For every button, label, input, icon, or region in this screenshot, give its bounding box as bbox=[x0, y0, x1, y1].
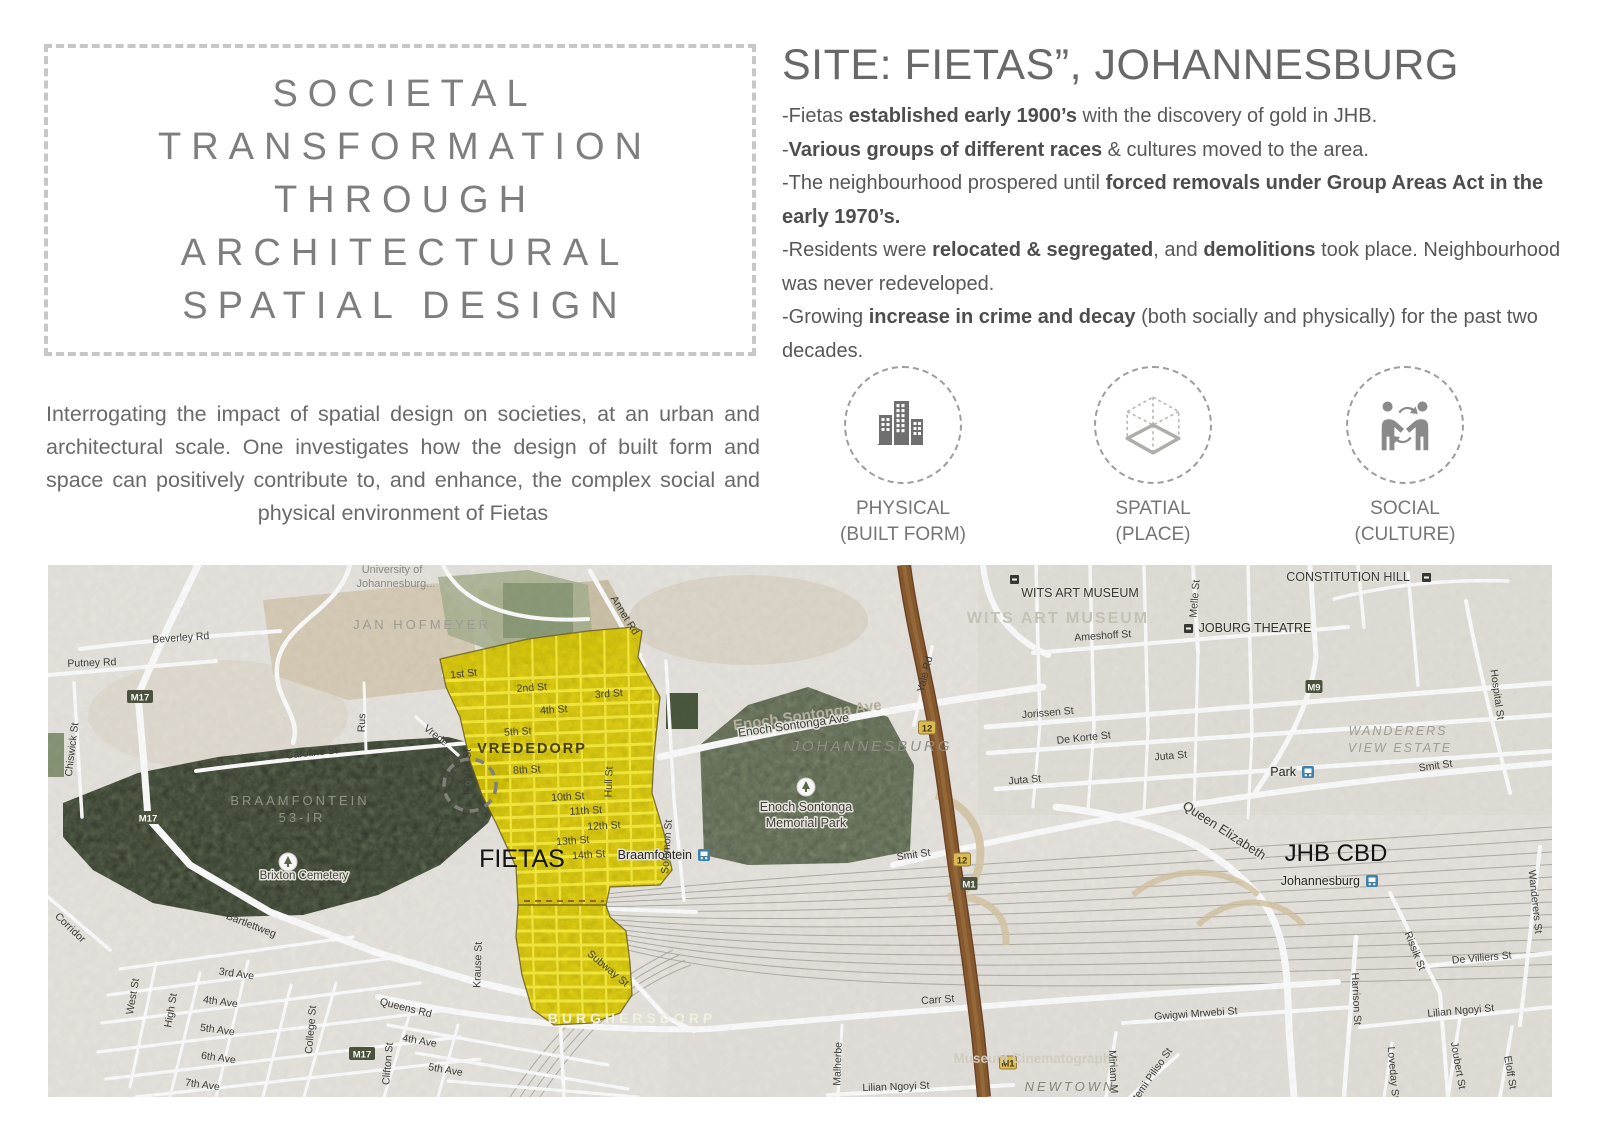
transit-station-icon bbox=[1369, 883, 1371, 885]
map-label: WANDERERS bbox=[1348, 724, 1447, 738]
route-badge: M9 bbox=[1306, 680, 1323, 694]
concept-label: SOCIAL bbox=[1284, 496, 1526, 522]
transit-station-icon bbox=[1309, 774, 1311, 776]
concept-label: SPATIAL bbox=[1032, 496, 1274, 522]
concept-sublabel: (PLACE) bbox=[1032, 522, 1274, 548]
map-label: 4th St bbox=[540, 703, 568, 717]
map-label: BRAAMFONTEIN bbox=[230, 793, 369, 808]
map-label: Krause St bbox=[471, 942, 485, 989]
map-label: Hull St bbox=[602, 766, 615, 797]
theatre-icon bbox=[1184, 624, 1193, 633]
isometric-cube-icon bbox=[1120, 392, 1186, 458]
map-label: BURGHERSDORP bbox=[548, 1010, 717, 1026]
map-label: Malherbe bbox=[831, 1042, 845, 1086]
cemetery-icon bbox=[279, 853, 297, 871]
map-label: Lilian Ngoyi St bbox=[862, 1080, 930, 1094]
site-bullet: -Various groups of different races & cul… bbox=[782, 134, 1562, 168]
site-bullet: -Fietas established early 1900’s with th… bbox=[782, 100, 1562, 134]
map-johannesburg: M17M17M17M9M1M11212BraamfonteinParkJohan… bbox=[48, 565, 1552, 1097]
site-bullets: -Fietas established early 1900’s with th… bbox=[782, 100, 1562, 368]
route-badge-text: M17 bbox=[131, 693, 149, 704]
map-label: Miriam M bbox=[1106, 1050, 1120, 1094]
site-bullet: -Residents were relocated & segregated, … bbox=[782, 234, 1562, 301]
route-badge: M17 bbox=[135, 811, 161, 825]
map-label: Carr St bbox=[921, 993, 955, 1007]
transit-station-icon bbox=[705, 857, 707, 859]
map-label: Enoch Sontonga bbox=[760, 800, 852, 814]
map-label: JOHANNESBURG bbox=[790, 738, 952, 755]
concept-social: SOCIAL (CULTURE) bbox=[1284, 366, 1526, 548]
route-badge: M17 bbox=[127, 690, 153, 704]
constitution-hill-icon bbox=[1424, 577, 1429, 579]
theatre-icon bbox=[1186, 628, 1191, 630]
map-label: 5th St bbox=[504, 725, 532, 738]
site-heading: SITE: FIETAS”, JOHANNESBURG bbox=[782, 40, 1562, 90]
museum-icon bbox=[1012, 579, 1017, 581]
map-label: Museum Cinematography bbox=[953, 1051, 1119, 1066]
people-exchange-icon bbox=[1374, 394, 1436, 456]
dashed-circle bbox=[1346, 366, 1464, 484]
site-section: SITE: FIETAS”, JOHANNESBURG -Fietas esta… bbox=[782, 40, 1562, 368]
concept-spatial: SPATIAL (PLACE) bbox=[1032, 366, 1274, 548]
map-label: 8th St bbox=[513, 763, 541, 776]
map-label: WITS ART MUSEUM bbox=[1021, 586, 1139, 600]
buildings-icon bbox=[871, 393, 935, 457]
map-label: 12th St bbox=[587, 819, 621, 833]
map-label: Memorial Park bbox=[766, 816, 847, 830]
project-title-line: TRANSFORMATION bbox=[148, 121, 652, 174]
route-badge: 12 bbox=[954, 853, 971, 867]
map-label: Rus bbox=[356, 713, 369, 732]
map-label: FIETAS bbox=[479, 845, 565, 873]
map-label: JOBURG THEATRE bbox=[1199, 621, 1312, 635]
route-badge-text: 12 bbox=[957, 856, 968, 867]
concept-label: PHYSICAL bbox=[782, 496, 1024, 522]
map-label: Putney Rd bbox=[67, 656, 117, 670]
route-badge-text: 12 bbox=[922, 724, 933, 735]
project-title-line: ARCHITECTURAL bbox=[171, 227, 630, 280]
map-label: 13th St bbox=[556, 834, 590, 848]
constitution-hill-icon bbox=[1422, 573, 1431, 582]
route-badge-text: M9 bbox=[1307, 683, 1320, 694]
concept-sublabel: (BUILT FORM) bbox=[782, 522, 1024, 548]
route-badge: 12 bbox=[919, 721, 936, 735]
map-label: JHB CBD bbox=[1285, 840, 1388, 867]
route-badge: M1 bbox=[961, 877, 978, 891]
transit-station-icon bbox=[1369, 878, 1376, 883]
map-label: 2nd St bbox=[516, 681, 547, 695]
map-label: 53-IR bbox=[279, 810, 326, 825]
concept-sublabel: (CULTURE) bbox=[1284, 522, 1526, 548]
map-svg: M17M17M17M9M1M11212BraamfonteinParkJohan… bbox=[48, 565, 1552, 1097]
transit-station-icon bbox=[1305, 769, 1312, 774]
map-label: VIEW ESTATE bbox=[1348, 741, 1452, 755]
map-label: 11th St bbox=[569, 804, 602, 818]
route-badge-text: M17 bbox=[353, 1050, 371, 1061]
map-label: VREDEDORP bbox=[477, 741, 587, 757]
route-badge-text: M17 bbox=[139, 814, 157, 825]
transit-station-icon bbox=[701, 852, 708, 857]
transit-station-icon bbox=[701, 857, 703, 859]
map-label: CONSTITUTION HILL bbox=[1286, 570, 1410, 584]
station-label: Braamfontein bbox=[618, 848, 692, 862]
project-title-line: SPATIAL DESIGN bbox=[172, 280, 627, 333]
map-label: 3rd St bbox=[594, 687, 623, 701]
project-title-box: SOCIETAL TRANSFORMATION THROUGH ARCHITEC… bbox=[44, 44, 756, 356]
station-label: Johannesburg bbox=[1281, 874, 1360, 888]
station-label: Park bbox=[1270, 765, 1296, 779]
park-tree-icon bbox=[797, 778, 815, 796]
map-label: JAN HOFMEYER bbox=[353, 617, 491, 632]
project-title-line: SOCIETAL bbox=[262, 68, 537, 121]
intro-paragraph: Interrogating the impact of spatial desi… bbox=[46, 398, 760, 530]
transit-station-icon bbox=[1373, 883, 1375, 885]
map-label: University of bbox=[362, 565, 423, 576]
map-label: Brixton Cemetery bbox=[260, 870, 349, 882]
map-label: NEWTOWN bbox=[1025, 1079, 1116, 1094]
site-bullet: -Growing increase in crime and decay (bo… bbox=[782, 301, 1562, 368]
project-title-line: THROUGH bbox=[264, 174, 536, 227]
map-label: WITS ART MUSEUM bbox=[967, 610, 1149, 627]
transit-station: Park bbox=[1270, 765, 1314, 779]
concept-physical: PHYSICAL (BUILT FORM) bbox=[782, 366, 1024, 548]
dashed-circle bbox=[1094, 366, 1212, 484]
map-label: 14th St bbox=[572, 848, 606, 862]
museum-icon bbox=[1010, 575, 1019, 584]
route-badge: M17 bbox=[349, 1047, 375, 1061]
route-badge-text: M1 bbox=[962, 880, 976, 891]
transit-station-icon bbox=[1305, 774, 1307, 776]
map-label: Johannesburg... bbox=[357, 578, 436, 590]
site-bullet: -The neighbourhood prospered until force… bbox=[782, 167, 1562, 234]
map-label: 10th St bbox=[551, 790, 585, 804]
map-label: Krause St bbox=[460, 749, 474, 796]
dashed-circle bbox=[844, 366, 962, 484]
